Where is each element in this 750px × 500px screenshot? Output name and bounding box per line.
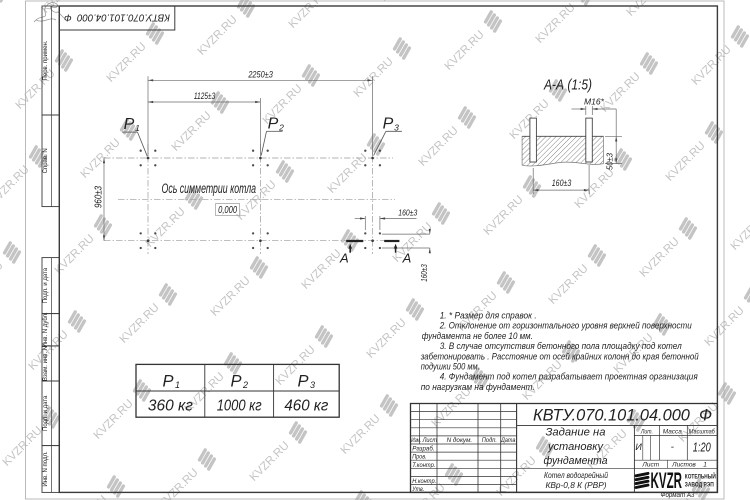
svg-text:Подп. и дата: Подп. и дата [43,267,49,303]
svg-text:0,000: 0,000 [218,205,237,216]
svg-text:Пров.: Пров. [412,454,427,461]
svg-text:2250±3: 2250±3 [248,70,273,80]
svg-text:2. Отклонение от горизонтально: 2. Отклонение от горизонтального уровня … [439,321,692,331]
svg-text:Подп.: Подп. [482,437,497,444]
svg-text:КВТУ.070.101.04.000 Ф: КВТУ.070.101.04.000 Ф [64,12,170,24]
svg-text:Лит.: Лит. [640,428,653,435]
svg-text:160±3: 160±3 [398,208,417,218]
svg-text:Р: Р [383,116,394,133]
svg-text:И: И [635,442,642,452]
svg-text:установку: установку [547,441,605,453]
svg-text:1125±3: 1125±3 [194,91,216,101]
svg-text:1:20: 1:20 [693,441,711,455]
svg-text:фундамента: фундамента [544,455,608,467]
svg-text:360 кг: 360 кг [148,398,193,415]
svg-text:КОТЕЛЬНЫЙ: КОТЕЛЬНЫЙ [685,473,716,481]
svg-text:1: 1 [703,461,707,468]
svg-text:Разраб.: Разраб. [412,445,435,453]
svg-text:фундамента не более 10 мм.: фундамента не более 10 мм. [422,331,533,341]
svg-text:Инв. N подл.: Инв. N подл. [43,451,49,487]
svg-text:160±3: 160±3 [552,178,572,188]
svg-text:Формат А3: Формат А3 [661,490,696,499]
svg-text:Справ. N: Справ. N [43,148,49,173]
svg-text:2: 2 [242,380,248,390]
svg-text:А: А [339,251,349,266]
svg-text:Ось симметрии котла: Ось симметрии котла [162,181,257,196]
svg-text:Р: Р [297,373,308,391]
svg-text:Масса: Масса [663,428,682,435]
svg-text:Инв. N дубл.: Инв. N дубл. [43,312,49,347]
svg-text:Масштаб: Масштаб [689,427,716,435]
svg-text:1000 кг: 1000 кг [217,398,262,415]
svg-text:Дата: Дата [500,437,516,444]
svg-text:подушки 500 мм.: подушки 500 мм. [421,362,480,372]
svg-text:Р: Р [268,116,279,133]
svg-text:М16*: М16* [584,98,605,107]
svg-text:А: А [402,251,412,266]
svg-text:по нагрузкам на фундамент.: по нагрузкам на фундамент. [421,382,535,392]
svg-text:3: 3 [310,380,315,390]
svg-text:А-А (1:5): А-А (1:5) [543,78,592,94]
svg-text:N докум.: N докум. [447,437,473,444]
svg-text:960±3: 960±3 [94,186,105,208]
svg-text:3. В случае отсутствия бетонно: 3. В случае отсутствия бетонного пола пл… [440,341,683,351]
svg-text:160±3: 160±3 [419,264,429,282]
svg-text:Т.контр.: Т.контр. [412,462,435,469]
svg-text:КВТУ.070.101.04.000 Ф: КВТУ.070.101.04.000 Ф [533,407,712,425]
svg-text:КВр-0,8 К (РВР): КВр-0,8 К (РВР) [546,481,607,490]
svg-text:4. Фундамент под котел разраба: 4. Фундамент под котел разрабатывает про… [440,372,698,382]
svg-text:1. * Размер для справок .: 1. * Размер для справок . [440,311,537,321]
svg-text:Р: Р [124,116,135,133]
svg-text:Лист: Лист [422,437,437,444]
svg-text:Р: Р [230,373,241,391]
svg-text:Подп. и дата: Подп. и дата [43,395,49,431]
svg-text:Н.контр.: Н.контр. [412,478,436,485]
svg-text:забетонировать . Расстояние от: забетонировать . Расстояние от осей край… [420,351,699,361]
svg-text:50±3: 50±3 [605,153,615,170]
svg-text:460 кг: 460 кг [284,398,328,415]
svg-text:Перв. примен.: Перв. примен. [43,40,49,80]
svg-text:1: 1 [175,380,180,390]
svg-text:Взам. инв. N: Взам. инв. N [43,346,49,381]
svg-text:Котел водогрейный: Котел водогрейный [544,471,608,480]
svg-text:Р: Р [162,373,173,391]
svg-text:1: 1 [135,123,140,133]
svg-text:Утв.: Утв. [411,486,424,493]
svg-text:Изм.: Изм. [411,437,421,444]
svg-text:Задание на: Задание на [546,427,606,439]
svg-text:ЗАВОД РЭП: ЗАВОД РЭП [685,482,714,488]
